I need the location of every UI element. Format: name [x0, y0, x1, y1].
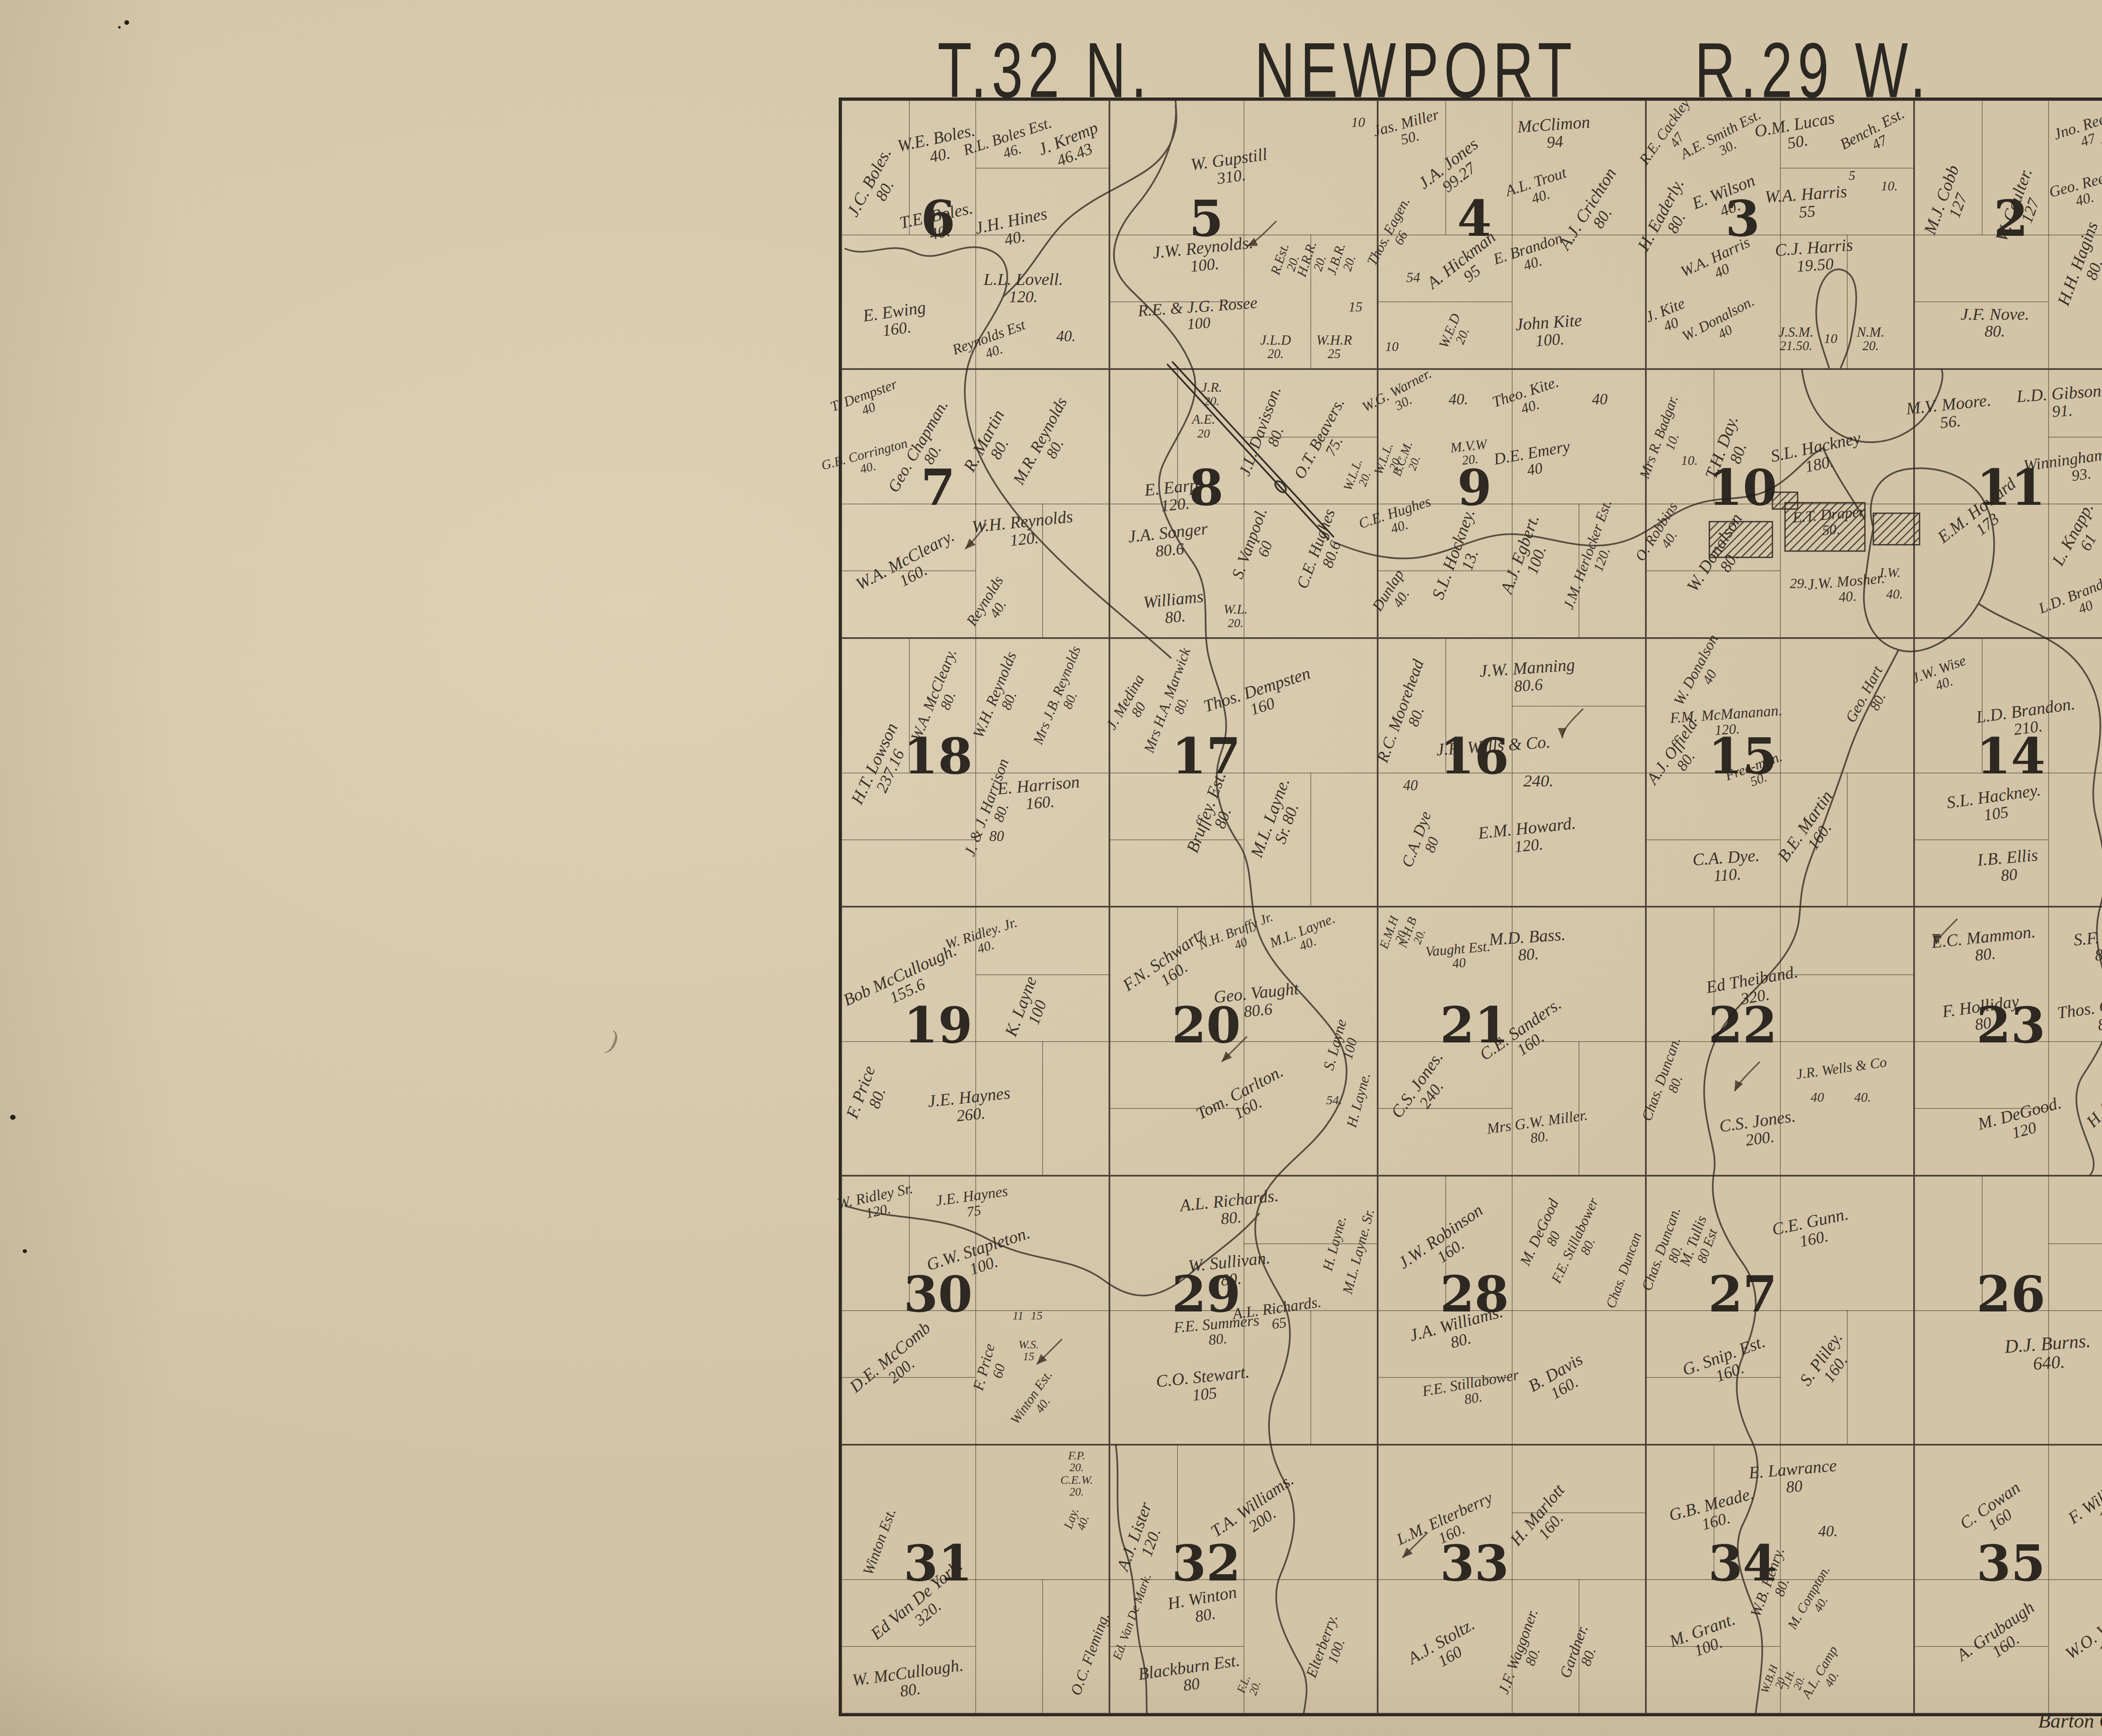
parcel-label: M. DeGood.120 — [1975, 1094, 2067, 1150]
parcel-label: B. Davis160. — [1525, 1350, 1594, 1410]
acreage: 20. — [1223, 616, 1248, 629]
parcel-label: 240. — [1524, 771, 1554, 789]
parcel-label: 11 — [1012, 1309, 1023, 1322]
parcel-label: E. Lawrance80 — [1748, 1456, 1839, 1499]
parcel-label: W.H. Reynolds120. — [971, 507, 1075, 553]
parcel-label: A.J. Stoltz.160 — [1405, 1615, 1486, 1683]
owner-name: F.P. — [1068, 1450, 1085, 1462]
owner-name: 54 — [1406, 270, 1420, 284]
acreage: 20. — [1068, 1462, 1085, 1474]
parcel-label: H.H. Hagins80. — [2054, 219, 2102, 314]
owner-name: J.W. — [1878, 566, 1901, 580]
parcel-label: 40. — [1854, 1090, 1871, 1104]
owner-name: 10. — [1881, 179, 1898, 193]
parcel-label: S.L. Hockney.13. — [1429, 507, 1494, 607]
section-cell-20: 20F.N. Schwartz160.N.H. Bruffy Jr.40M.L.… — [1109, 907, 1378, 1176]
section-number: 33 — [1440, 1538, 1509, 1588]
parcel-label: A. Grubaugh160. — [1953, 1598, 2047, 1678]
parcel-label: T.A. Williams.200. — [1207, 1470, 1307, 1554]
parcel-label: Winton Est. — [860, 1506, 899, 1578]
map-title: T.32 N. NEWPORT R.29 W. — [937, 25, 1963, 99]
owner-name: 10. — [1681, 454, 1698, 467]
parcel-label: Theo. Kite.40. — [1490, 374, 1566, 425]
parcel-label: J.W. — [1878, 566, 1901, 580]
parcel-label: W.L.20. — [1223, 602, 1248, 629]
section-cell-8: 8J.R.20.A.E.20J.L. Davisson.80.O.T. Beav… — [1109, 369, 1378, 638]
parcel-label: S. Vanpool.60 — [1228, 506, 1285, 587]
parcel-label: C.A. Dye80 — [1399, 809, 1449, 875]
parcel-label: S.L. Hackney.105 — [1946, 781, 2044, 828]
parcel-label: L.D. Brandon.40 — [2036, 569, 2102, 630]
parcel-label: M.V.W20. — [1450, 437, 1489, 468]
parcel-label: W.S.15 — [1018, 1338, 1039, 1362]
ink-speck — [23, 1249, 27, 1253]
section-cell-16: 16R.C. Moorehead80.J.W. Manning80.6J.R. … — [1378, 638, 1646, 907]
quarter-line — [1378, 773, 1645, 773]
owner-name: 5 — [1848, 169, 1855, 182]
plat-map-page: T.32 N. NEWPORT R.29 W. — [0, 0, 2102, 1736]
parcel-label: F.L.20. — [1234, 1673, 1263, 1699]
parcel-label: L.L. Lovell.120. — [984, 270, 1063, 305]
quarter-line — [975, 974, 1109, 975]
parcel-label: 54. — [1326, 1094, 1342, 1107]
parcel-label: W. Sullivan.80. — [1188, 1248, 1273, 1292]
owner-name: 40. — [1818, 1523, 1838, 1539]
owner-name: L.L. Lovell. — [984, 270, 1063, 288]
quarter-line — [1915, 839, 2048, 840]
parcel-label: J.W. Manning80.6 — [1479, 655, 1577, 697]
parcel-label: D.J. Burns.640. — [2004, 1331, 2093, 1375]
parcel-label: J.M. Herlocker Est.120. — [1561, 498, 1628, 617]
parcel-label: Vaught Est.40 — [1425, 939, 1492, 973]
quarter-line — [842, 235, 1109, 235]
owner-name: J.R. — [1201, 380, 1222, 394]
parcel-label: C.A. Dye.110. — [1692, 846, 1761, 886]
quarter-line — [1647, 839, 1780, 840]
parcel-label: J.L. Davisson.80. — [1236, 384, 1299, 484]
parcel-label: 10 — [1351, 115, 1365, 129]
parcel-label: 40. — [1056, 328, 1075, 344]
parcel-label: C.E.W.20. — [1060, 1474, 1093, 1498]
quarter-line — [1378, 235, 1645, 235]
section-cell-31: 31Winton Est.Ed Van De York.320.F.P.20.C… — [841, 1445, 1109, 1714]
owner-name: W.H.R — [1316, 333, 1352, 347]
parcel-label: Reynolds40. — [964, 573, 1019, 636]
parcel-label: 15 — [1031, 1309, 1043, 1322]
parcel-label: J.R. Wells & Co — [1795, 1054, 1888, 1082]
parcel-label: F.P.20. — [1068, 1450, 1085, 1474]
quarter-line — [1647, 504, 1913, 504]
parcel-label: G. Snip. Est.160. — [1680, 1332, 1773, 1395]
section-cell-11: 11M.V. Moore.56.L.D. Gibson.91.Winningha… — [1914, 369, 2102, 638]
owner-name: H. Layne. — [1344, 1071, 1373, 1129]
owner-name: John Kite — [1515, 311, 1582, 334]
owner-name: 10 — [1385, 340, 1399, 354]
township-grid: NEWPORT 6J.C. Boles.80.W.E. Boles.40.R.L… — [839, 98, 2102, 1716]
acreage: 21.50. — [1778, 339, 1813, 353]
parcel-label: J.E. Haynes260. — [927, 1084, 1013, 1127]
parcel-label: J.E. Haynes75 — [935, 1183, 1011, 1224]
quarter-line — [1647, 235, 1913, 235]
parcel-label: 80 — [989, 829, 1004, 844]
owner-name: 10 — [1351, 115, 1365, 129]
parcel-label: Geo. Reed40. — [2047, 168, 2102, 215]
parcel-label: E.T. Draper.50. — [1792, 504, 1869, 541]
section-cell-30: 30W. Ridley Sr.120.J.E. Haynes75G.W. Sta… — [841, 1176, 1109, 1445]
quarter-line — [1110, 773, 1377, 773]
quarter-line — [1512, 706, 1645, 707]
parcel-label: Gardner.80. — [1557, 1623, 1605, 1686]
parcel-label: E.M. Howard.120. — [1477, 814, 1579, 859]
parcel-label: R.C. Moorehead80. — [1374, 657, 1442, 770]
parcel-label: N.M.20. — [1857, 325, 1885, 353]
quarter-line — [842, 1310, 1109, 1311]
parcel-label: W.E.D20. — [1436, 311, 1476, 355]
section-cell-23: 23E.C. Mammon.80.S.F. Ash.80.F. Holliday… — [1914, 907, 2102, 1176]
section-cell-3: 3R.E. Cackley47A.E. Smith Est.30.O.M. Lu… — [1646, 100, 1914, 369]
quarter-line — [1915, 301, 2048, 302]
parcel-label: Chas. Duncan.80. — [1639, 1035, 1697, 1128]
owner-name: S.F. Ash. — [2073, 925, 2102, 949]
parcel-label: L.D. Gibson.91. — [2016, 381, 2102, 422]
parcel-label: B.E. Martin160. — [1774, 788, 1850, 875]
parcel-label: 10 — [1824, 332, 1837, 346]
quarter-line — [842, 1646, 975, 1647]
parcel-label: 40. — [1449, 391, 1468, 407]
parcel-label: 40 — [1403, 778, 1418, 793]
parcel-label: John Kite100. — [1515, 311, 1584, 351]
quarter-line — [1847, 773, 1848, 906]
parcel-label: O.M. Lucas50. — [1753, 109, 1839, 157]
owner-name: J.R. Wells & Co — [1795, 1054, 1888, 1082]
parcel-label: C.O. Stewart.105 — [1155, 1363, 1252, 1407]
parcel-label: J.A. Songer80.6 — [1128, 519, 1211, 562]
section-cell-32: 32A.J. Lister120.T.A. Williams.200.Ed. V… — [1109, 1445, 1378, 1714]
owner-name: W.L. — [1223, 602, 1248, 616]
acreage: 15 — [1018, 1351, 1039, 1362]
parcel-label: Thos. Dempsten160 — [1202, 664, 1318, 731]
owner-name: N.M. — [1857, 325, 1885, 339]
owner-name: H.A. Hagins — [2083, 1058, 2102, 1131]
section-cell-28: 28J.W. Robinson160.M. DeGood80F.E. Still… — [1378, 1176, 1646, 1445]
parcel-label: L.D. Brandon.210. — [1975, 695, 2078, 743]
section-cell-33: 33L.M. Elterberry160.H. Marlott160.A.J. … — [1378, 1445, 1646, 1714]
parcel-label: W.A. Harris55 — [1764, 182, 1849, 223]
section-cell-26: 26D.J. Burns.640. — [1914, 1176, 2102, 1445]
owner-name: 40 — [1403, 778, 1418, 793]
parcel-label: S. Pliley.160. — [1796, 1329, 1860, 1398]
parcel-label: D.E. Emery40 — [1492, 438, 1574, 484]
parcel-label: W.O. Woody160. — [2062, 1599, 2102, 1676]
parcel-label: G.W. Stapleton.100. — [924, 1224, 1037, 1290]
parcel-label: J.W. Mosher.40. — [1806, 570, 1886, 608]
parcel-label: T.E. Boles.40. — [898, 199, 978, 248]
parcel-label: K. Layne100 — [1001, 974, 1056, 1045]
parcel-label: Chas. Duncan — [1603, 1230, 1644, 1310]
quarter-line — [1042, 1041, 1043, 1175]
parcel-label: I.B. Ellis80 — [1976, 846, 2040, 886]
owner-name: J.L.D — [1260, 333, 1291, 347]
section-cell-19: 19Bob McCullough.155.6W. Ridley. Jr.40.K… — [841, 907, 1109, 1176]
parcel-label: Ed Theiband.320. — [1705, 963, 1802, 1013]
parcel-label: F.E. Summers80. — [1173, 1312, 1261, 1351]
parcel-label: F.E. Stillabower80. — [1421, 1367, 1522, 1414]
parcel-label: 40. — [1818, 1523, 1838, 1539]
parcel-label: Geo. Vaught80.6 — [1213, 979, 1301, 1023]
parcel-label: H. Layne. — [1344, 1071, 1373, 1129]
owner-name: 29. — [1790, 576, 1808, 591]
parcel-label: M.D. Bass.80. — [1488, 925, 1567, 966]
parcel-label: 29. — [1790, 576, 1808, 591]
quarter-line — [1647, 1310, 1913, 1311]
parcel-label: 5 — [1848, 169, 1855, 182]
section-cell-35: 35C. Cowan160F. Wilhelm.160.A. Grubaugh1… — [1914, 1445, 2102, 1714]
parcel-label: A.J. Egbert.100. — [1497, 512, 1558, 602]
owner-name: A.E. — [1192, 412, 1215, 426]
quarter-line — [1847, 1310, 1848, 1444]
parcel-label: 10. — [1881, 179, 1898, 193]
acreage: 20 — [1192, 426, 1215, 439]
quarter-line — [1378, 1579, 1645, 1580]
parcel-label: 54 — [1406, 270, 1420, 284]
parcel-label: E.C. Mammon.80. — [1930, 922, 2038, 968]
section-cell-7: 7T. Dempster40G.B. Corrington40.Geo. Cha… — [841, 369, 1109, 638]
section-cell-14: 14J.W. Wise40.L.D. Brandon.210.S.L. Hack… — [1914, 638, 2102, 907]
parcel-label: Mrs G.W. Miller.80. — [1486, 1107, 1591, 1152]
parcel-label: W. Gupstill310. — [1190, 145, 1271, 190]
owner-name: 10 — [1824, 332, 1837, 346]
parcel-label: A.L. Richards.80. — [1179, 1186, 1281, 1231]
ink-speck — [124, 20, 129, 25]
quarter-line — [842, 839, 975, 840]
owner-name: J.F. Nove. — [1961, 305, 2029, 323]
section-number: 27 — [1708, 1269, 1777, 1319]
quarter-line — [1310, 773, 1311, 906]
parcel-label: 10. — [1681, 454, 1698, 467]
parcel-label: J.S.M.21.50. — [1778, 325, 1813, 353]
parcel-label: Geo. Hart80. — [1843, 663, 1899, 732]
pencil-stray-mark: ) — [606, 1024, 621, 1057]
parcel-label: E. Brandon40. — [1492, 230, 1569, 282]
parcel-label: McClimon94 — [1517, 113, 1592, 153]
section-cell-4: 4Jas. Miller50.J.A. Jones99.27McClimon94… — [1378, 100, 1646, 369]
quarter-line — [2048, 437, 2102, 438]
parcel-label: C.S. Jones.240. — [1387, 1048, 1460, 1131]
quarter-line — [1378, 1310, 1645, 1311]
section-number: 26 — [1976, 1269, 2045, 1319]
quarter-line — [1110, 1646, 1244, 1647]
quarter-line — [842, 1041, 1109, 1042]
parcel-label: H.A. Hagins160. — [2083, 1058, 2102, 1143]
owner-name: 15 — [1349, 299, 1363, 314]
parcel-label: D.E. McComb200. — [846, 1319, 945, 1409]
owner-name: Winton Est. — [860, 1506, 899, 1578]
parcel-label: M.R. Reynolds80. — [1010, 394, 1085, 495]
quarter-line — [842, 1579, 1109, 1580]
owner-name: Chas. Duncan — [1603, 1230, 1644, 1310]
acreage: 25 — [1316, 347, 1352, 361]
parcel-label: 40 — [1592, 391, 1608, 407]
parcel-label: C.S. Jones.200. — [1718, 1107, 1799, 1152]
county-note: Barton Co. Mo. — [2038, 1709, 2102, 1732]
section-number: 17 — [1172, 731, 1241, 781]
parcel-label: M.L. Layne.Sr. 80. — [1247, 776, 1309, 866]
parcel-label: M.L. Layne.40. — [1268, 911, 1342, 963]
acreage: 80. — [1961, 323, 2029, 340]
owner-name: 40. — [1854, 1090, 1871, 1104]
parcel-label: L. Knapp.61 — [2049, 500, 2102, 577]
parcel-label: Lay.40. — [1061, 1506, 1092, 1535]
section-cell-18: 18H.T. Lowson237.16W.A. McCleary.80.W.H.… — [841, 638, 1109, 907]
parcel-label: Blackburn Est.80 — [1137, 1651, 1244, 1700]
owner-name: J.S.M. — [1778, 325, 1813, 339]
owner-name: 80 — [989, 829, 1004, 844]
ink-speck — [10, 1115, 16, 1120]
parcel-label: Thos. Carson.80. — [2056, 991, 2102, 1039]
parcel-label: M. Grant.100. — [1667, 1610, 1743, 1666]
quarter-line — [1982, 101, 1983, 235]
parcel-label: T. Dempster40 — [829, 377, 904, 427]
parcel-label: C.J. Harris19.50 — [1775, 236, 1855, 276]
parcel-label: Jas. Miller50. — [1371, 106, 1444, 154]
parcel-label: Jno. Reed47 — [2052, 108, 2102, 157]
quarter-line — [2048, 1243, 2102, 1244]
section-cell-15: 15W. Donalson40A.J. Offield80.F.M. McMan… — [1646, 638, 1914, 907]
owner-name: 15 — [1031, 1309, 1043, 1322]
quarter-line — [1780, 974, 1913, 975]
parcel-label: Winton Est.40. — [1008, 1368, 1065, 1434]
section-cell-10: 10Mrs R. Badgar.10.10.T.H. Day.80.S.L. H… — [1646, 369, 1914, 638]
parcel-label: M.V. Moore.56. — [1905, 391, 1994, 435]
owner-name: 11 — [1012, 1309, 1023, 1322]
owner-name: Ed. Van De Mark. — [1110, 1572, 1153, 1661]
parcel-label: Mrs J.B. Reynolds80. — [1030, 644, 1096, 752]
parcel-label: W.H. Reynolds80. — [970, 649, 1034, 746]
acreage: 20. — [1260, 347, 1291, 361]
parcel-label: S.L. Hackney180. — [1769, 429, 1866, 482]
section-cell-2: 2M.J. Cobb127W. Coulter.127Jno. Reed47Dr… — [1914, 100, 2102, 369]
parcel-label: E. Harrison160. — [997, 773, 1082, 815]
parcel-label: R.E. & J.G. Rosee100 — [1137, 294, 1259, 335]
quarter-line — [1042, 1579, 1043, 1713]
quarter-line — [1310, 1310, 1311, 1444]
owner-name: 54. — [1326, 1094, 1342, 1107]
parcel-label: E. Earp.120. — [1143, 475, 1205, 516]
section-cell-6: 6J.C. Boles.80.W.E. Boles.40.R.L. Boles … — [841, 100, 1109, 369]
parcel-label: H. Marlott160. — [1507, 1481, 1581, 1560]
parcel-label: 10 — [1385, 340, 1399, 354]
parcel-label: W. Ridley. Jr.40. — [943, 915, 1023, 965]
owner-name: 40. — [1449, 391, 1468, 407]
parcel-label: J.F. Waggoner.80. — [1495, 1607, 1555, 1701]
parcel-label: F. Price80. — [843, 1063, 894, 1127]
parcel-label: 40 — [1811, 1090, 1824, 1104]
parcel-label: Elterberry.100. — [1303, 1612, 1355, 1685]
parcel-label: W.A. Harris40 — [1678, 234, 1759, 294]
parcel-label: S. Layne100 — [1320, 1018, 1363, 1076]
section-number: 35 — [1976, 1538, 2045, 1588]
parcel-label: A.E.20 — [1192, 412, 1215, 439]
section-cell-34: 34G.B. Meade.160.E. Lawrance8040.M. Gran… — [1646, 1445, 1914, 1714]
parcel-label: Bench. Est.47 — [1838, 105, 1915, 166]
acreage: 20. — [1857, 339, 1885, 353]
section-cell-27: 27Chas. Duncan.80.M. Tullis80 EstC.E. Gu… — [1646, 1176, 1914, 1445]
owner-name: 40. — [1056, 328, 1075, 344]
owner-name: 240. — [1524, 771, 1554, 789]
acreage: 120. — [984, 288, 1063, 306]
parcel-label: Williams80. — [1142, 587, 1206, 628]
quarter-line — [975, 168, 1109, 169]
owner-name: C.E.W. — [1060, 1474, 1093, 1486]
quarter-line — [842, 504, 1109, 504]
parcel-label: C.E. Gunn.160. — [1770, 1205, 1854, 1256]
section-cell-22: 22Ed Theiband.320.Chas. Duncan.80.C.S. J… — [1646, 907, 1914, 1176]
parcel-label: W. Donalson40 — [1671, 632, 1735, 715]
acreage: 20. — [1201, 394, 1222, 407]
section-number: 19 — [903, 1000, 972, 1050]
acreage: 20. — [1060, 1486, 1093, 1498]
parcel-label: J.F. Nove.80. — [1961, 305, 2029, 340]
owner-name: 40 — [1592, 391, 1608, 407]
owner-name: 40. — [1886, 587, 1903, 601]
parcel-label: F. Wilhelm.160. — [2065, 1468, 2102, 1541]
parcel-label: W. Ridley Sr.120. — [836, 1180, 918, 1226]
parcel-label: J.H. Hines40. — [973, 204, 1052, 254]
section-cell-29: 29A.L. Richards.80.W. Sullivan.80.A.L. R… — [1109, 1176, 1378, 1445]
parcel-label: C.E. Hughes80.6 — [1294, 507, 1353, 596]
parcel-label: J.L.D20. — [1260, 333, 1291, 361]
quarter-line — [1780, 168, 1913, 169]
parcel-label: J.W. Reynolds.100. — [1151, 233, 1255, 279]
parcel-label: J.R.20. — [1201, 380, 1222, 407]
parcel-label: A.L. Trout40. — [1504, 164, 1574, 214]
parcel-label: M.J. Cobb127 — [1921, 163, 1978, 243]
section-cell-21: 21E.M.H20N.H.B20.Vaught Est.40M.D. Bass.… — [1378, 907, 1646, 1176]
parcel-label: S.F. Ash.80. — [2073, 925, 2102, 966]
owner-name: 40 — [1811, 1090, 1824, 1104]
parcel-label: Reynolds Est40. — [951, 317, 1033, 371]
parcel-label: 15 — [1349, 299, 1363, 314]
parcel-label: W. McCullough.80. — [851, 1656, 966, 1706]
section-cell-17: 17J. Medina80Mrs H.A. Marwick80.Thos. De… — [1109, 638, 1378, 907]
parcel-label: W.A. McCleary.160. — [853, 527, 965, 609]
owner-name: O.C. Fleming. — [1068, 1611, 1112, 1697]
parcel-label: Winningham Est.93. — [2023, 442, 2102, 490]
parcel-label: Ed. Van De Mark. — [1110, 1572, 1153, 1661]
parcel-label: H.R.R.20. — [1294, 240, 1331, 283]
parcel-label: A.J. Lister120. — [1114, 1500, 1171, 1579]
parcel-label: 40. — [1886, 587, 1903, 601]
parcel-label: O.C. Fleming. — [1068, 1611, 1112, 1697]
section-cell-5: 5W. Gupstill310.J.W. Reynolds.100.R.E. &… — [1109, 100, 1378, 369]
section-number: 9 — [1457, 463, 1492, 512]
owner-name: Thos. Carson. — [2056, 991, 2102, 1022]
ink-speck — [118, 26, 121, 29]
parcel-label: W.H.R25 — [1316, 333, 1352, 361]
section-cell-9: 9W.G. Warner.30.40.Theo. Kite.40.40W.L.L… — [1378, 369, 1646, 638]
owner-name: W.S. — [1018, 1338, 1039, 1351]
parcel-label: W. Donalson.40 — [1679, 294, 1763, 357]
parcel-label: W. Donalson80. — [1683, 510, 1760, 604]
parcel-label: W.L.L.20. — [1341, 457, 1376, 496]
parcel-label: E. Ewing160. — [862, 298, 929, 342]
parcel-label: J.W. Wise40. — [1910, 653, 1973, 700]
parcel-label: F. Price60 — [970, 1342, 1012, 1396]
